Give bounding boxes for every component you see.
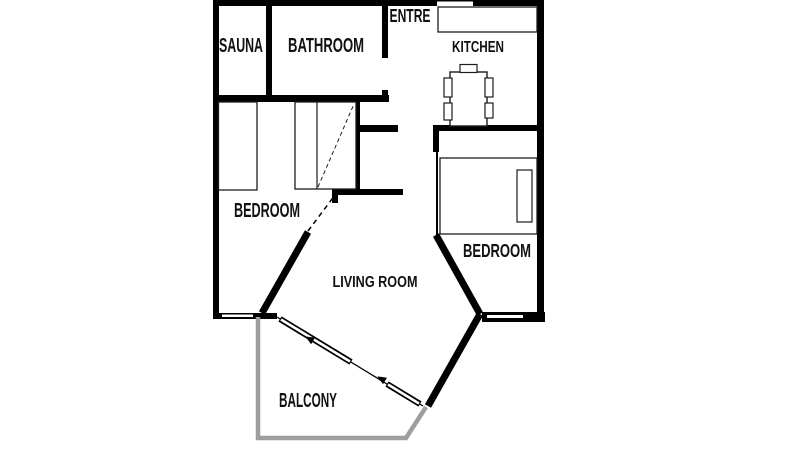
chair-top-icon [460, 65, 477, 73]
chair-right-1-icon [485, 78, 493, 97]
chair-right-2-icon [485, 103, 493, 118]
sliding-door-panel-1-glass [281, 320, 350, 362]
wall-bedroom-right-left-upper [433, 131, 439, 152]
balcony-outline-group [258, 317, 426, 438]
room-label-balcony: BALCONY [279, 390, 337, 412]
room-label-living-room: LIVING ROOM [333, 274, 418, 291]
entrance-door-opening [437, 2, 473, 7]
wall-hall-bottom [332, 189, 403, 195]
wall-hall-bottom-endcap [332, 189, 338, 203]
wall-corridor-left-segment [360, 125, 398, 132]
wall-bedroom-left-diagonal [262, 232, 308, 313]
wall-top-exterior [213, 0, 544, 6]
room-label-sauna: SAUNA [219, 35, 263, 57]
wall-bedroom-right-left-thin [436, 152, 438, 237]
room-label-kitchen: KITCHEN [452, 39, 504, 56]
kitchen-counter-icon [438, 7, 537, 32]
wall-bathroom-entre-lower [382, 90, 388, 102]
wardrobe-icon [295, 102, 356, 189]
wall-bathroom-entre-upper [382, 6, 388, 58]
balcony-railing [258, 317, 426, 438]
window-bottom-right [487, 315, 523, 318]
floor-plan-drawing: SAUNA BATHROOM ENTRE KITCHEN BEDROOM LIV… [0, 0, 800, 450]
wall-living-balcony-right-diagonal [428, 314, 480, 406]
room-label-bedroom-left: BEDROOM [234, 200, 300, 222]
dining-table-icon [450, 72, 487, 126]
floor-plan-canvas: SAUNA BATHROOM ENTRE KITCHEN BEDROOM LIV… [0, 0, 800, 450]
wall-wet-area-bottom [213, 95, 389, 102]
sliding-door-panel-2-glass [388, 385, 419, 404]
room-label-bathroom: BATHROOM [288, 35, 364, 57]
chair-left-1-icon [444, 78, 452, 97]
chair-left-2-icon [444, 103, 452, 120]
room-label-bedroom-right: BEDROOM [463, 241, 531, 261]
bedroom-left-door-leaf [308, 195, 335, 231]
wall-sauna-bathroom-divider [266, 6, 272, 97]
window-bottom-left [222, 315, 253, 318]
wall-right-exterior [537, 0, 544, 322]
double-bed-pillow-icon [517, 170, 532, 222]
room-label-entre: ENTRE [390, 6, 431, 26]
single-bed-icon [219, 102, 258, 190]
